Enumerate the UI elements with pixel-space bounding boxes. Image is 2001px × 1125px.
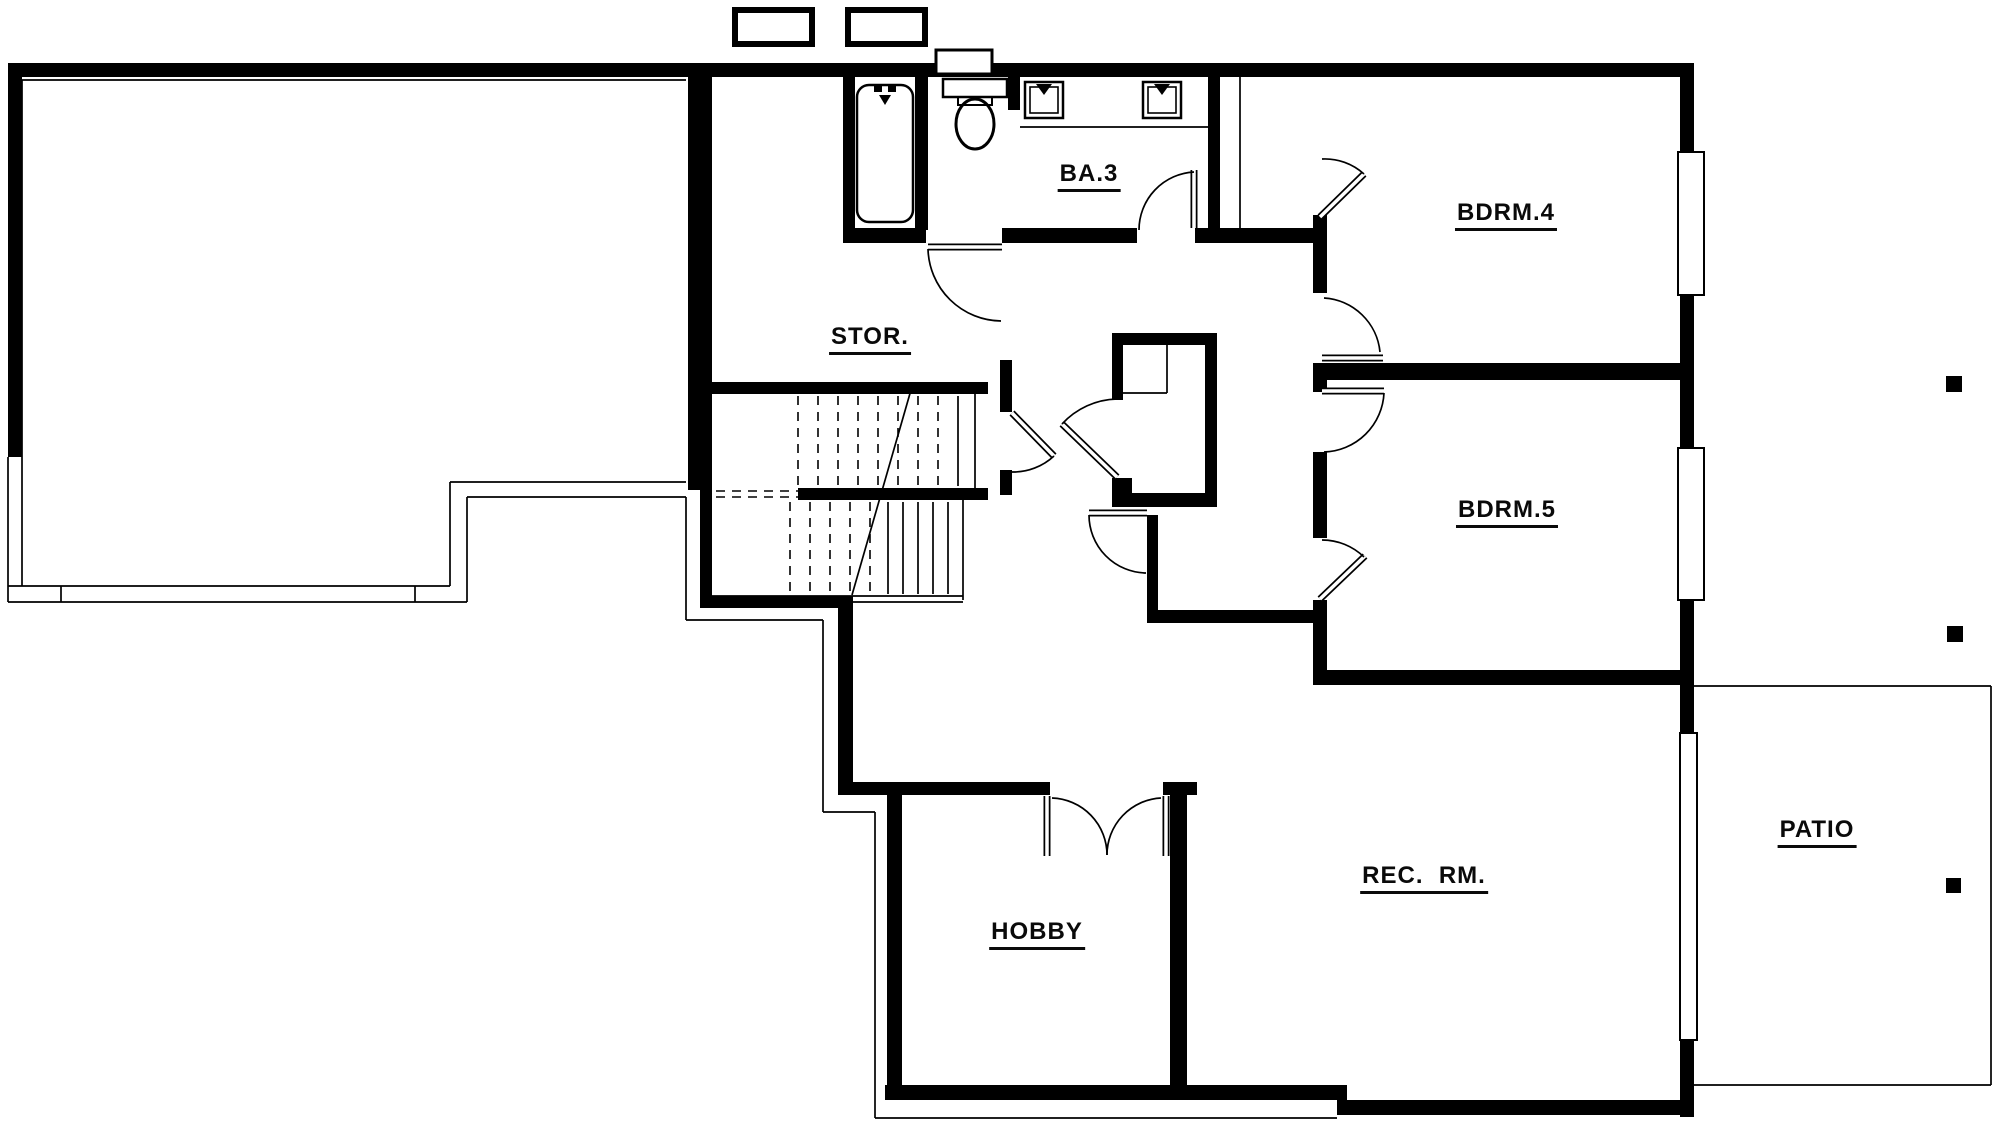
wall bbox=[838, 782, 1050, 795]
chimney-box bbox=[735, 10, 812, 44]
wall bbox=[1112, 478, 1132, 507]
wall bbox=[1313, 670, 1694, 685]
wall bbox=[1313, 452, 1327, 538]
door-swing-arc bbox=[1139, 172, 1194, 230]
door-leaf-inner bbox=[1062, 424, 1117, 477]
wall bbox=[700, 596, 853, 608]
wall bbox=[1002, 228, 1137, 243]
floor-plan-page: STOR.BA.3BDRM.4BDRM.5HOBBYREC. RM.PATIO bbox=[0, 0, 2001, 1125]
floor-plan-drawing bbox=[0, 0, 2001, 1125]
wall bbox=[1170, 795, 1187, 1095]
wall bbox=[1147, 515, 1158, 615]
wall bbox=[885, 1085, 1347, 1100]
wall bbox=[700, 382, 712, 608]
post-marker bbox=[1946, 376, 1962, 392]
door-leaf-inner bbox=[1320, 556, 1365, 599]
wall bbox=[1008, 63, 1020, 110]
wall bbox=[1680, 63, 1694, 152]
door-swing-arc bbox=[1322, 540, 1364, 557]
window bbox=[1678, 448, 1704, 600]
chimney-box bbox=[848, 10, 925, 44]
post-marker bbox=[1947, 626, 1963, 642]
wall bbox=[1313, 215, 1327, 293]
sink-faucet bbox=[1036, 84, 1052, 95]
bathtub bbox=[857, 85, 913, 222]
wall bbox=[1163, 782, 1197, 795]
sink-faucet bbox=[1154, 84, 1170, 95]
toilet-niche bbox=[936, 50, 992, 74]
wall bbox=[1123, 493, 1217, 507]
bathtub-spout bbox=[879, 95, 891, 105]
wall bbox=[1208, 63, 1220, 235]
door-swing-arc bbox=[1324, 298, 1380, 352]
window bbox=[1680, 733, 1697, 1040]
wall bbox=[700, 382, 988, 394]
wall bbox=[887, 795, 902, 1095]
wall bbox=[1112, 333, 1217, 345]
door-leaf-inner bbox=[1012, 413, 1054, 456]
door-swing-arc bbox=[928, 249, 1001, 321]
door-swing-arc bbox=[1324, 393, 1384, 452]
wall bbox=[1000, 470, 1012, 495]
wall bbox=[1680, 600, 1694, 733]
wall bbox=[1337, 1100, 1694, 1115]
door-swing-arc bbox=[1107, 798, 1161, 855]
door-swing-arc bbox=[1012, 456, 1054, 472]
toilet-bowl bbox=[956, 99, 994, 149]
wall bbox=[1205, 333, 1217, 507]
wall bbox=[1313, 363, 1694, 380]
wall bbox=[843, 72, 855, 233]
wall bbox=[1147, 610, 1313, 623]
door-swing-arc bbox=[1052, 798, 1107, 855]
post-marker bbox=[1946, 878, 1961, 893]
windows-group bbox=[1678, 152, 1704, 1040]
door-swing-arc bbox=[1322, 159, 1364, 174]
wall bbox=[1000, 360, 1012, 412]
wall bbox=[915, 72, 928, 230]
bathtub-faucet-knob bbox=[874, 85, 882, 92]
wall bbox=[798, 488, 988, 500]
wall bbox=[1195, 228, 1325, 243]
wall bbox=[843, 228, 926, 243]
wall bbox=[1112, 333, 1123, 400]
bathtub-faucet-knob bbox=[888, 85, 896, 92]
door-swing-arc bbox=[1062, 399, 1117, 424]
toilet-tank bbox=[943, 79, 1007, 97]
door-leaf-inner bbox=[1320, 174, 1364, 217]
wall bbox=[838, 600, 853, 795]
walls-group bbox=[8, 63, 1694, 1117]
window bbox=[1678, 152, 1704, 295]
wall bbox=[8, 63, 22, 457]
door-swing-arc bbox=[1089, 515, 1146, 573]
